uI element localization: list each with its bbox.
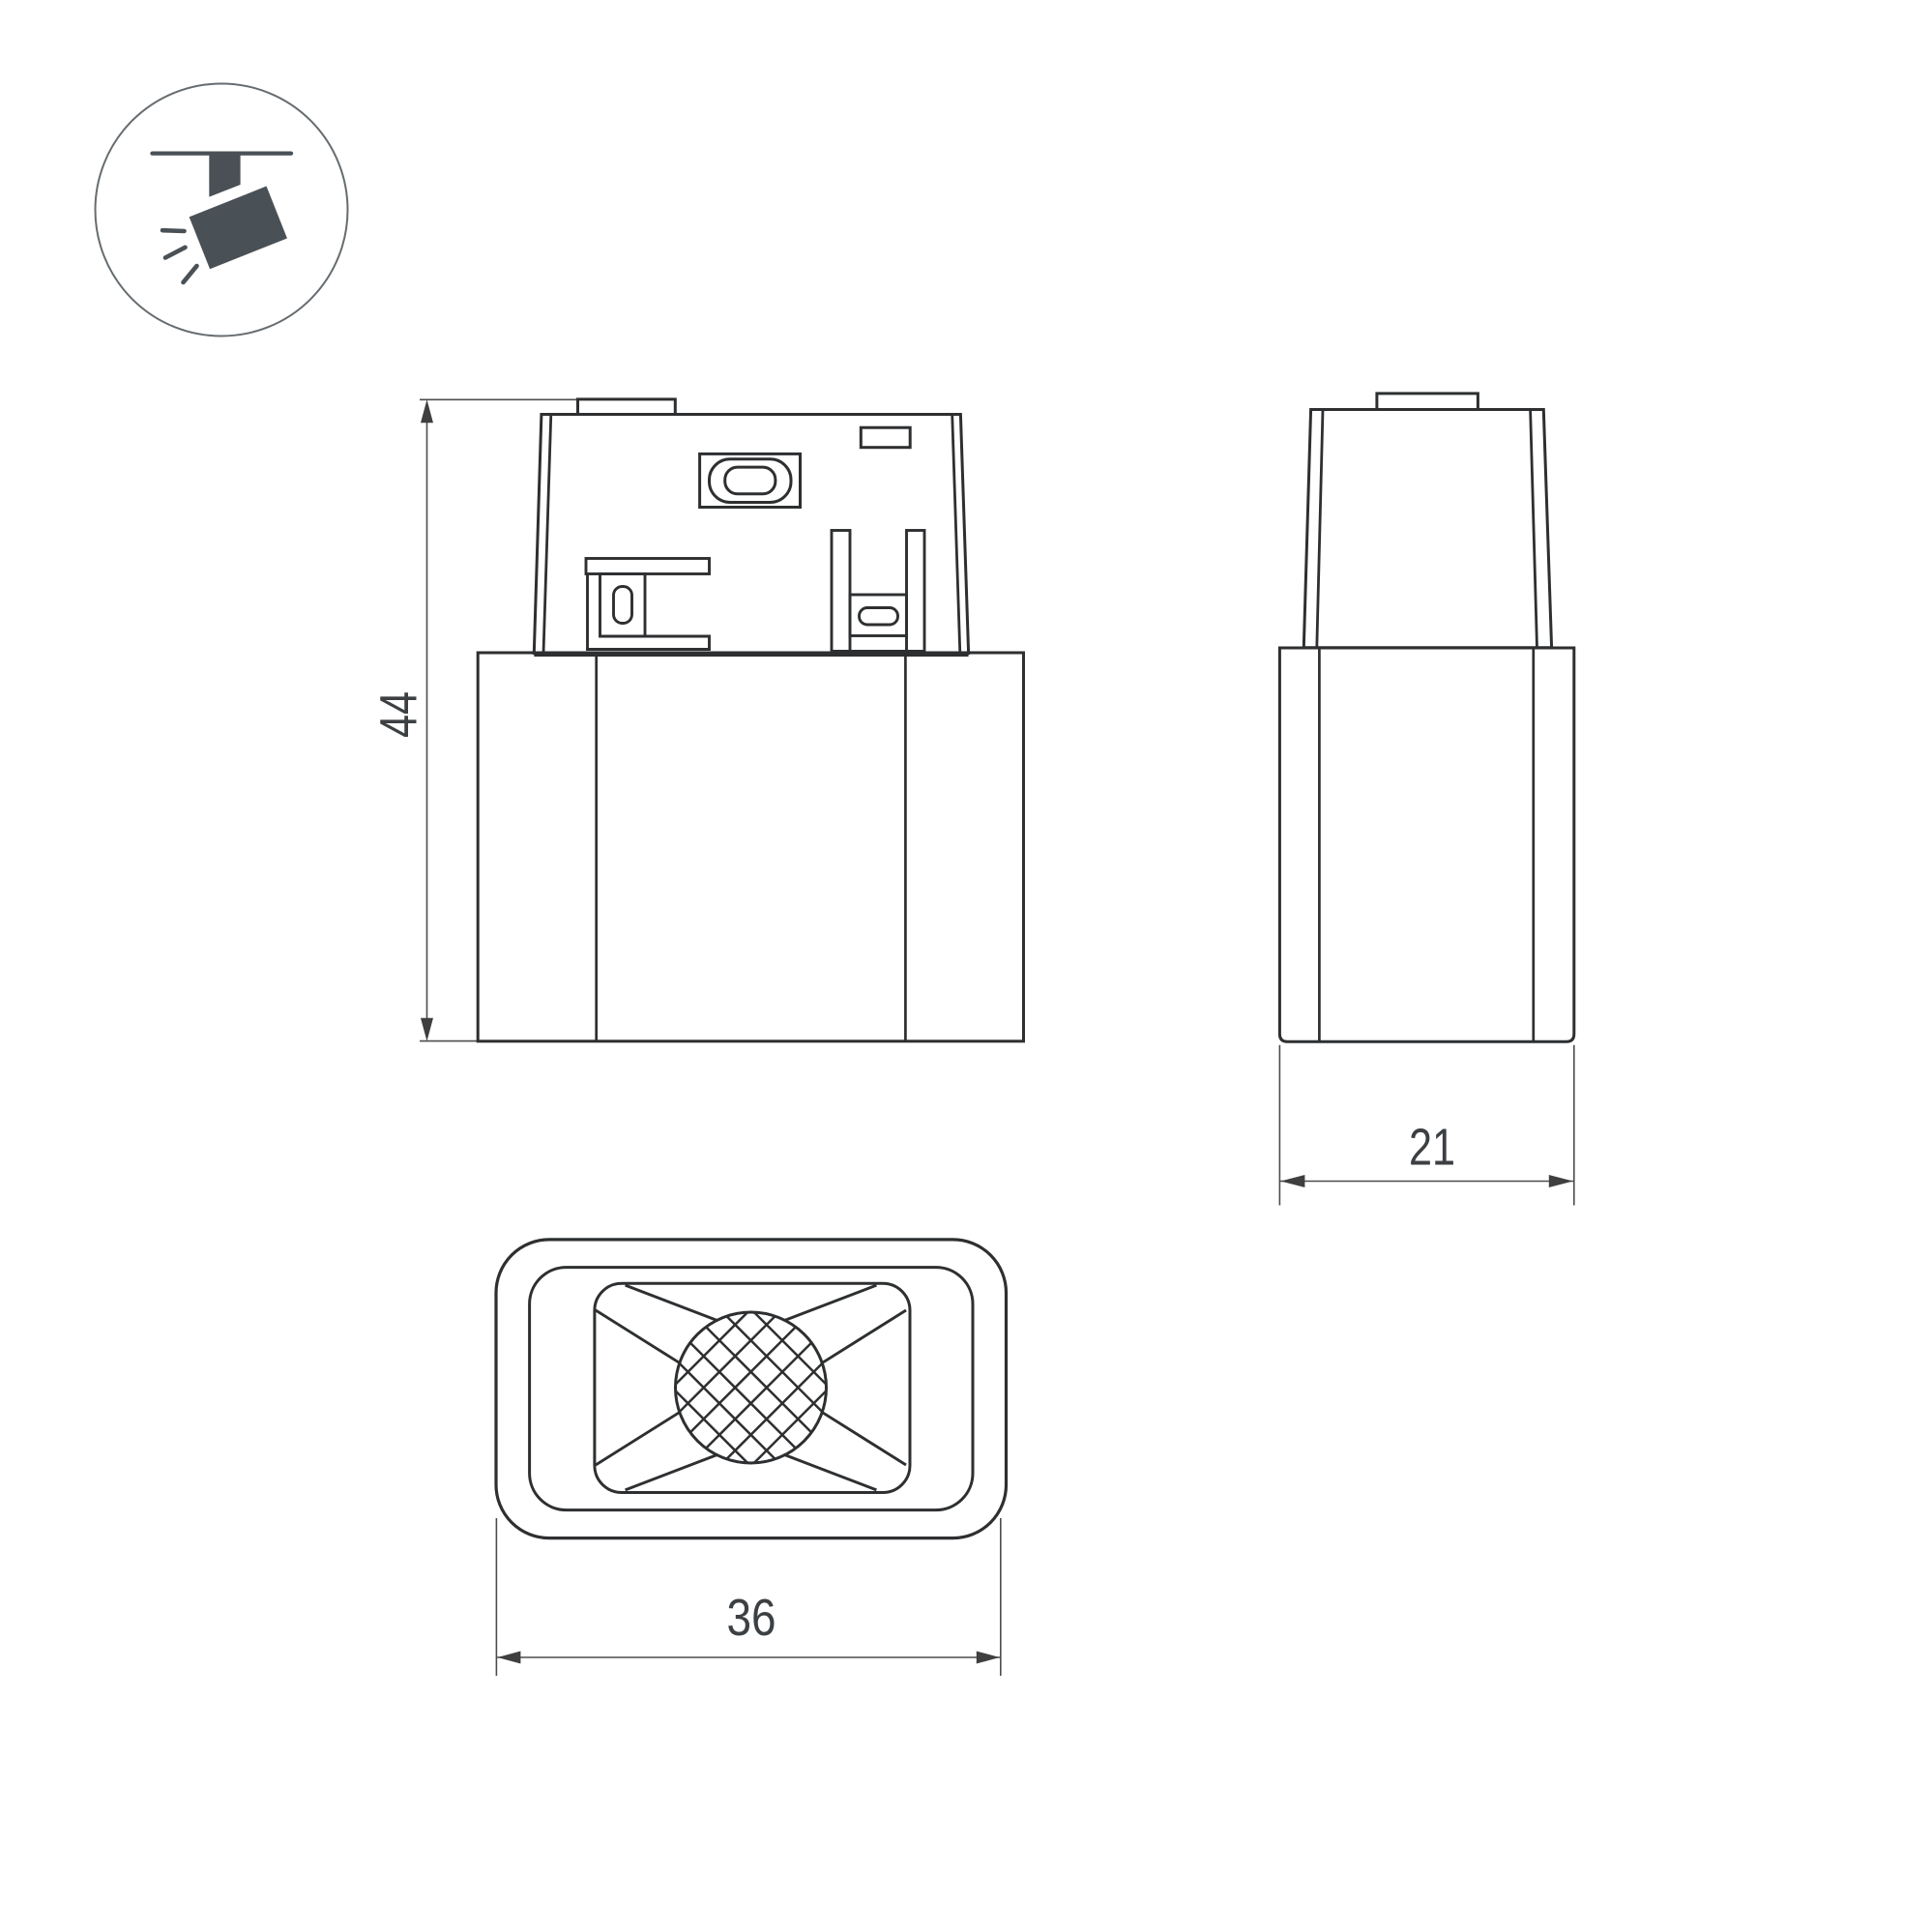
svg-text:36: 36	[726, 1589, 776, 1647]
svg-text:44: 44	[370, 691, 428, 738]
svg-text:21: 21	[1409, 1119, 1455, 1177]
